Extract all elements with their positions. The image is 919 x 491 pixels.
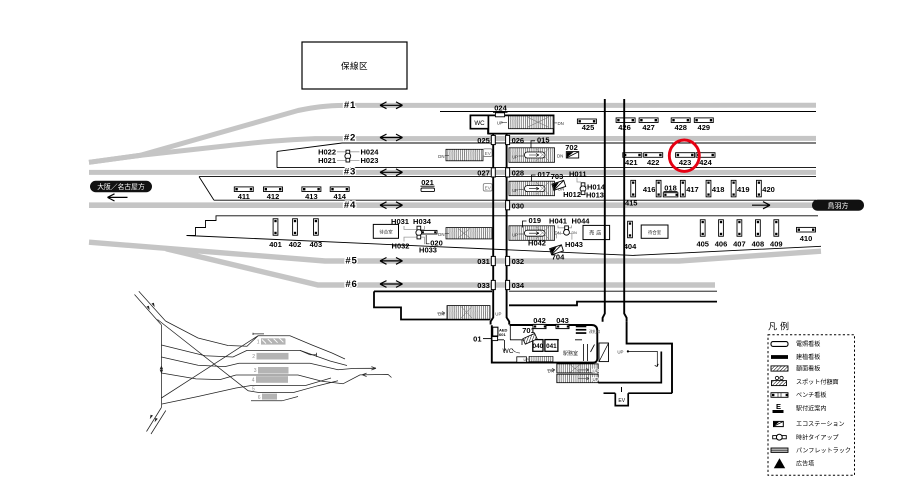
svg-text:411: 411 bbox=[238, 192, 250, 201]
svg-text:駅務室: 駅務室 bbox=[563, 350, 578, 357]
svg-text:4: 4 bbox=[252, 377, 255, 383]
svg-text:H024: H024 bbox=[361, 147, 380, 156]
svg-text:429: 429 bbox=[698, 123, 711, 132]
svg-text:413: 413 bbox=[305, 192, 318, 201]
svg-text:409: 409 bbox=[770, 240, 783, 249]
svg-text:E: E bbox=[776, 402, 781, 411]
svg-text:鳥羽方: 鳥羽方 bbox=[828, 201, 849, 210]
svg-text:034: 034 bbox=[512, 281, 525, 290]
svg-text:032: 032 bbox=[512, 257, 525, 266]
svg-text:407: 407 bbox=[733, 240, 746, 249]
svg-text:H044: H044 bbox=[572, 217, 591, 226]
svg-text:電照看板: 電照看板 bbox=[796, 340, 820, 348]
svg-text:#1: #1 bbox=[344, 100, 356, 111]
svg-text:422: 422 bbox=[647, 158, 660, 167]
svg-text:410: 410 bbox=[800, 234, 813, 243]
svg-text:417: 417 bbox=[686, 185, 699, 194]
svg-text:UP: UP bbox=[497, 120, 503, 125]
svg-text:待合室: 待合室 bbox=[379, 229, 393, 236]
svg-text:408: 408 bbox=[752, 240, 765, 249]
svg-text:#4: #4 bbox=[344, 200, 356, 211]
svg-text:702: 702 bbox=[565, 143, 578, 152]
svg-text:H012: H012 bbox=[563, 190, 581, 199]
svg-text:ベンチ看板: ベンチ看板 bbox=[796, 391, 826, 399]
svg-text:DN: DN bbox=[438, 154, 444, 159]
svg-text:415: 415 bbox=[625, 198, 638, 207]
svg-text:H042: H042 bbox=[528, 238, 546, 247]
svg-text:額面看板: 額面看板 bbox=[796, 365, 820, 373]
svg-text:027: 027 bbox=[477, 169, 490, 178]
svg-text:420: 420 bbox=[762, 185, 775, 194]
svg-text:UP: UP bbox=[524, 358, 530, 362]
svg-text:033: 033 bbox=[477, 281, 490, 290]
svg-text:EV: EV bbox=[485, 151, 492, 156]
svg-text:026: 026 bbox=[512, 136, 525, 145]
svg-text:018: 018 bbox=[664, 183, 677, 192]
svg-text:028: 028 bbox=[512, 169, 525, 178]
svg-text:時計タイアップ: 時計タイアップ bbox=[796, 433, 839, 441]
svg-text:改札口: 改札口 bbox=[589, 329, 601, 334]
svg-text:H034: H034 bbox=[413, 217, 432, 226]
svg-text:6: 6 bbox=[258, 395, 261, 401]
svg-text:2: 2 bbox=[252, 354, 255, 360]
svg-text:424: 424 bbox=[699, 158, 712, 167]
svg-text:DN: DN bbox=[438, 232, 444, 237]
svg-text:建植看板: 建植看板 bbox=[796, 353, 820, 361]
svg-text:DN: DN bbox=[572, 231, 578, 235]
svg-text:428: 428 bbox=[674, 123, 687, 132]
svg-text:402: 402 bbox=[289, 240, 302, 249]
svg-text:H031: H031 bbox=[391, 217, 409, 226]
svg-text:H013: H013 bbox=[586, 191, 604, 200]
svg-text:3: 3 bbox=[254, 368, 257, 374]
svg-text:WC: WC bbox=[474, 120, 485, 127]
svg-text:5: 5 bbox=[252, 387, 255, 393]
svg-text:DN: DN bbox=[557, 153, 563, 158]
svg-text:#3: #3 bbox=[344, 167, 356, 178]
svg-text:H043: H043 bbox=[565, 240, 583, 249]
svg-text:大阪／名古屋方: 大阪／名古屋方 bbox=[97, 182, 145, 191]
svg-text:#6: #6 bbox=[345, 279, 357, 290]
svg-text:015: 015 bbox=[537, 136, 550, 145]
svg-text:041: 041 bbox=[546, 343, 557, 350]
svg-text:025: 025 bbox=[477, 136, 490, 145]
svg-text:#2: #2 bbox=[344, 133, 356, 144]
svg-text:売店: 売店 bbox=[589, 230, 603, 237]
svg-text:H022: H022 bbox=[318, 147, 336, 156]
svg-text:412: 412 bbox=[267, 192, 280, 201]
svg-text:421: 421 bbox=[625, 158, 638, 167]
svg-text:UP: UP bbox=[495, 311, 501, 316]
svg-text:UP: UP bbox=[512, 232, 518, 237]
svg-text:広告塔: 広告塔 bbox=[796, 460, 814, 468]
svg-text:H032: H032 bbox=[392, 242, 410, 251]
svg-text:419: 419 bbox=[737, 185, 750, 194]
svg-text:425: 425 bbox=[582, 123, 595, 132]
svg-text:駅付近案内: 駅付近案内 bbox=[796, 405, 826, 413]
svg-text:043: 043 bbox=[556, 316, 569, 325]
svg-text:UP: UP bbox=[617, 349, 623, 354]
svg-text:UP: UP bbox=[512, 188, 518, 193]
svg-text:701: 701 bbox=[522, 326, 535, 335]
svg-text:待合室: 待合室 bbox=[648, 229, 662, 236]
svg-text:#5: #5 bbox=[345, 256, 357, 267]
svg-text:H023: H023 bbox=[361, 156, 379, 165]
svg-text:スポット付額面: スポット付額面 bbox=[796, 378, 839, 386]
svg-text:EV: EV bbox=[485, 185, 492, 190]
svg-text:403: 403 bbox=[310, 240, 323, 249]
svg-text:DN: DN bbox=[555, 230, 561, 235]
svg-text:DN: DN bbox=[558, 121, 564, 126]
svg-text:423: 423 bbox=[679, 158, 692, 167]
svg-text:1: 1 bbox=[257, 340, 260, 346]
svg-text:427: 427 bbox=[642, 123, 655, 132]
svg-text:030: 030 bbox=[512, 201, 525, 210]
svg-text:414: 414 bbox=[333, 192, 346, 201]
svg-text:H021: H021 bbox=[318, 156, 336, 165]
svg-text:UP: UP bbox=[512, 154, 518, 159]
svg-text:021: 021 bbox=[421, 178, 434, 187]
svg-text:UP: UP bbox=[593, 368, 599, 373]
svg-text:024: 024 bbox=[494, 104, 507, 113]
svg-text:保線区: 保線区 bbox=[341, 60, 368, 71]
svg-text:019: 019 bbox=[529, 216, 542, 225]
svg-text:601: 601 bbox=[499, 332, 506, 337]
svg-text:404: 404 bbox=[624, 242, 637, 251]
svg-text:418: 418 bbox=[712, 185, 725, 194]
svg-text:H041: H041 bbox=[549, 217, 567, 226]
svg-text:031: 031 bbox=[477, 257, 490, 266]
svg-text:017: 017 bbox=[538, 170, 551, 179]
svg-text:040: 040 bbox=[533, 343, 544, 350]
svg-text:UP: UP bbox=[593, 377, 599, 382]
svg-text:01: 01 bbox=[473, 334, 481, 343]
svg-text:405: 405 bbox=[696, 240, 709, 249]
svg-text:エコステーション: エコステーション bbox=[796, 421, 845, 428]
svg-text:EV: EV bbox=[618, 398, 625, 404]
svg-text:401: 401 bbox=[269, 240, 282, 249]
svg-text:406: 406 bbox=[715, 240, 728, 249]
svg-text:H011: H011 bbox=[569, 169, 587, 178]
svg-text:042: 042 bbox=[533, 316, 546, 325]
svg-text:416: 416 bbox=[643, 185, 656, 194]
svg-text:H033: H033 bbox=[419, 246, 437, 255]
svg-text:凡例: 凡例 bbox=[768, 321, 792, 332]
svg-text:パンフレットラック: パンフレットラック bbox=[796, 447, 851, 454]
svg-text:703: 703 bbox=[551, 172, 564, 181]
